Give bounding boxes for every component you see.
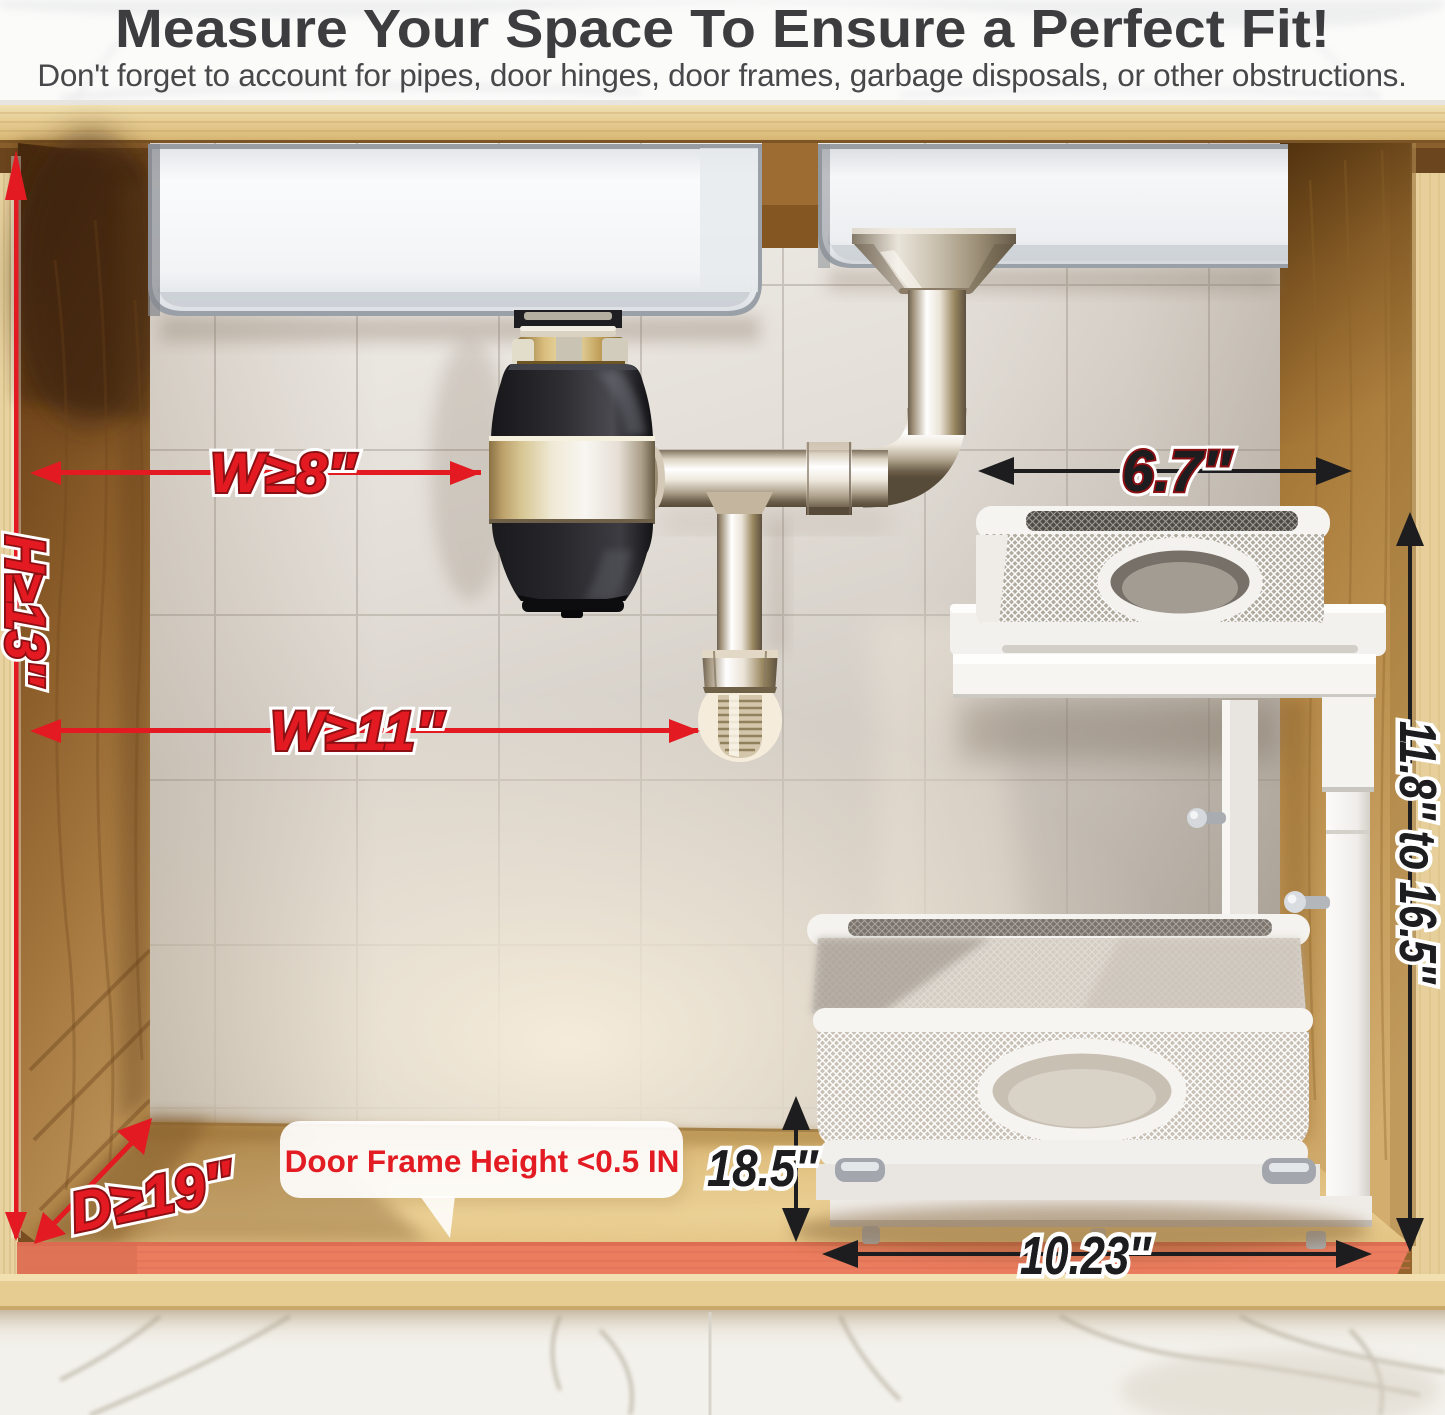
svg-text:18.5″: 18.5″ [707,1140,819,1198]
svg-text:W≥11″: W≥11″ [270,699,445,762]
svg-text:6.7″: 6.7″ [1122,439,1233,504]
svg-text:Measure Your Space To Ensure a: Measure Your Space To Ensure a Perfect F… [115,0,1330,59]
svg-text:11.8″ to 16.5″: 11.8″ to 16.5″ [1388,721,1445,985]
svg-text:10.23″: 10.23″ [1020,1226,1152,1286]
svg-text:Don't forget to account for pi: Don't forget to account for pipes, door … [37,57,1406,93]
svg-text:H≥13″: H≥13″ [0,535,57,687]
svg-text:W≥8″: W≥8″ [210,441,357,504]
svg-text:Door Frame Height <0.5 IN: Door Frame Height <0.5 IN [285,1143,680,1179]
